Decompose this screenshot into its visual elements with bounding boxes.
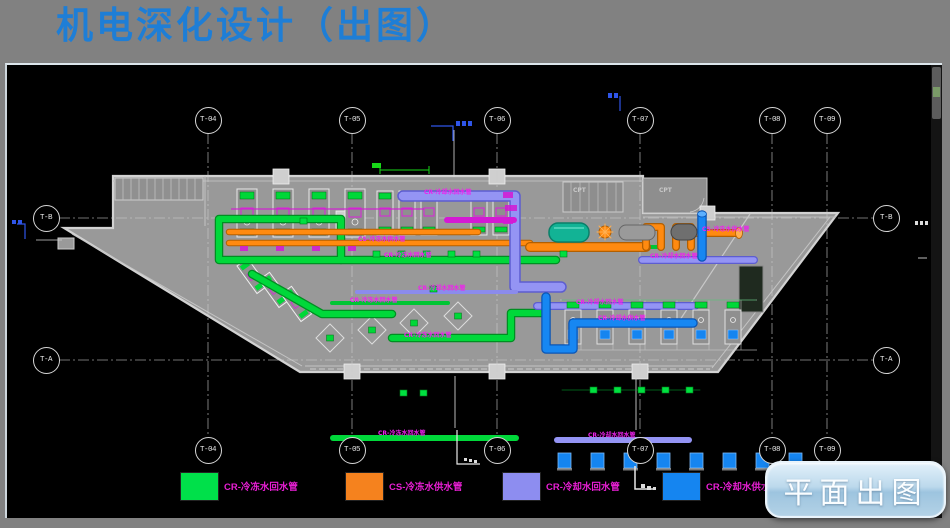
grid-bubble-t-b: T-B	[33, 205, 60, 232]
grid-bubble-t-05: T-05	[339, 107, 366, 134]
grid-bubble-t-04: T-04	[195, 437, 222, 464]
scrollbar-thumb[interactable]	[932, 67, 941, 119]
grid-bubble-t-04: T-04	[195, 107, 222, 134]
legend-swatch	[502, 472, 541, 501]
grid-bubble-t-07: T-07	[627, 107, 654, 134]
grid-bubble-t-09: T-09	[814, 437, 841, 464]
grid-bubble-t-06: T-06	[484, 437, 511, 464]
grid-bubble-t-05: T-05	[339, 437, 366, 464]
vessels	[549, 223, 697, 242]
scrollbar-mark	[933, 87, 940, 97]
grid-bubble-t-a: T-A	[873, 347, 900, 374]
plan-export-button[interactable]: 平面出图	[765, 461, 946, 518]
legend-label: CR-冷冻水回水管	[224, 479, 298, 493]
grid-stems	[455, 376, 636, 430]
legend-swatch	[662, 472, 701, 501]
page-title: 机电深化设计（出图）	[56, 0, 456, 58]
scrollbar	[931, 65, 942, 518]
floor-plan-drawing	[7, 65, 937, 518]
grid-bubble-t-a: T-A	[33, 347, 60, 374]
grid-bubble-t-06: T-06	[484, 107, 511, 134]
grid-bubble-t-08: T-08	[759, 107, 786, 134]
impeller-symbol	[597, 224, 613, 240]
legend-swatch	[180, 472, 219, 501]
cad-viewport	[5, 63, 942, 518]
grid-bubble-t-09: T-09	[814, 107, 841, 134]
legend-swatch	[345, 472, 384, 501]
slide: 机电深化设计（出图）	[0, 0, 950, 528]
grid-bubble-t-b: T-B	[873, 205, 900, 232]
grid-bubble-t-07: T-07	[627, 437, 654, 464]
legend-label: CR-冷却水回水管	[546, 479, 620, 493]
grid-bubble-t-08: T-08	[759, 437, 786, 464]
legend-label: CS-冷冻水供水管	[389, 479, 462, 493]
